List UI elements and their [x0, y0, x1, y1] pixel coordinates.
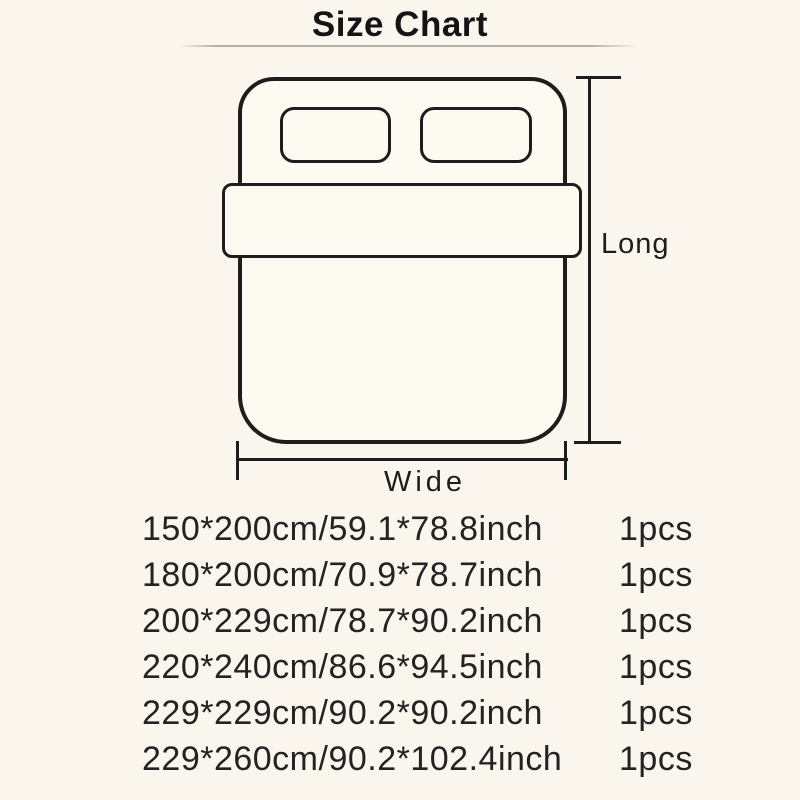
- qty-text: 1pcs: [619, 644, 693, 690]
- size-row: 229*260cm/90.2*102.4inch 1pcs: [142, 736, 702, 782]
- qty-text: 1pcs: [619, 736, 693, 782]
- size-row: 229*229cm/90.2*90.2inch 1pcs: [142, 690, 702, 736]
- qty-text: 1pcs: [619, 506, 693, 552]
- pillow-left: [280, 107, 391, 163]
- wide-measure-tick-right: [564, 441, 567, 480]
- long-measure-cap-top: [576, 76, 621, 79]
- long-label: Long: [601, 228, 670, 261]
- title-divider: [178, 45, 638, 47]
- duvet-band: [222, 183, 582, 258]
- size-chart-image: Size Chart Long Wide 150*200cm/59.1*78.8…: [0, 0, 800, 800]
- size-row: 150*200cm/59.1*78.8inch 1pcs: [142, 506, 702, 552]
- pillow-right: [420, 107, 532, 163]
- qty-text: 1pcs: [619, 598, 693, 644]
- long-measure-line: [588, 77, 591, 444]
- qty-text: 1pcs: [619, 690, 693, 736]
- wide-measure-tick-left: [236, 441, 239, 480]
- size-row: 220*240cm/86.6*94.5inch 1pcs: [142, 644, 702, 690]
- page-title: Size Chart: [0, 5, 800, 45]
- size-row: 200*229cm/78.7*90.2inch 1pcs: [142, 598, 702, 644]
- size-text: 150*200cm/59.1*78.8inch: [142, 510, 543, 548]
- long-measure-cap-bottom: [574, 441, 621, 444]
- wide-label: Wide: [340, 466, 510, 499]
- size-text: 220*240cm/86.6*94.5inch: [142, 648, 543, 686]
- wide-measure-line: [237, 458, 568, 461]
- size-text: 180*200cm/70.9*78.7inch: [142, 556, 543, 594]
- size-row: 180*200cm/70.9*78.7inch 1pcs: [142, 552, 702, 598]
- qty-text: 1pcs: [619, 552, 693, 598]
- size-text: 229*260cm/90.2*102.4inch: [142, 740, 562, 778]
- size-list: 150*200cm/59.1*78.8inch 1pcs 180*200cm/7…: [142, 506, 702, 782]
- size-text: 229*229cm/90.2*90.2inch: [142, 694, 543, 732]
- size-text: 200*229cm/78.7*90.2inch: [142, 602, 543, 640]
